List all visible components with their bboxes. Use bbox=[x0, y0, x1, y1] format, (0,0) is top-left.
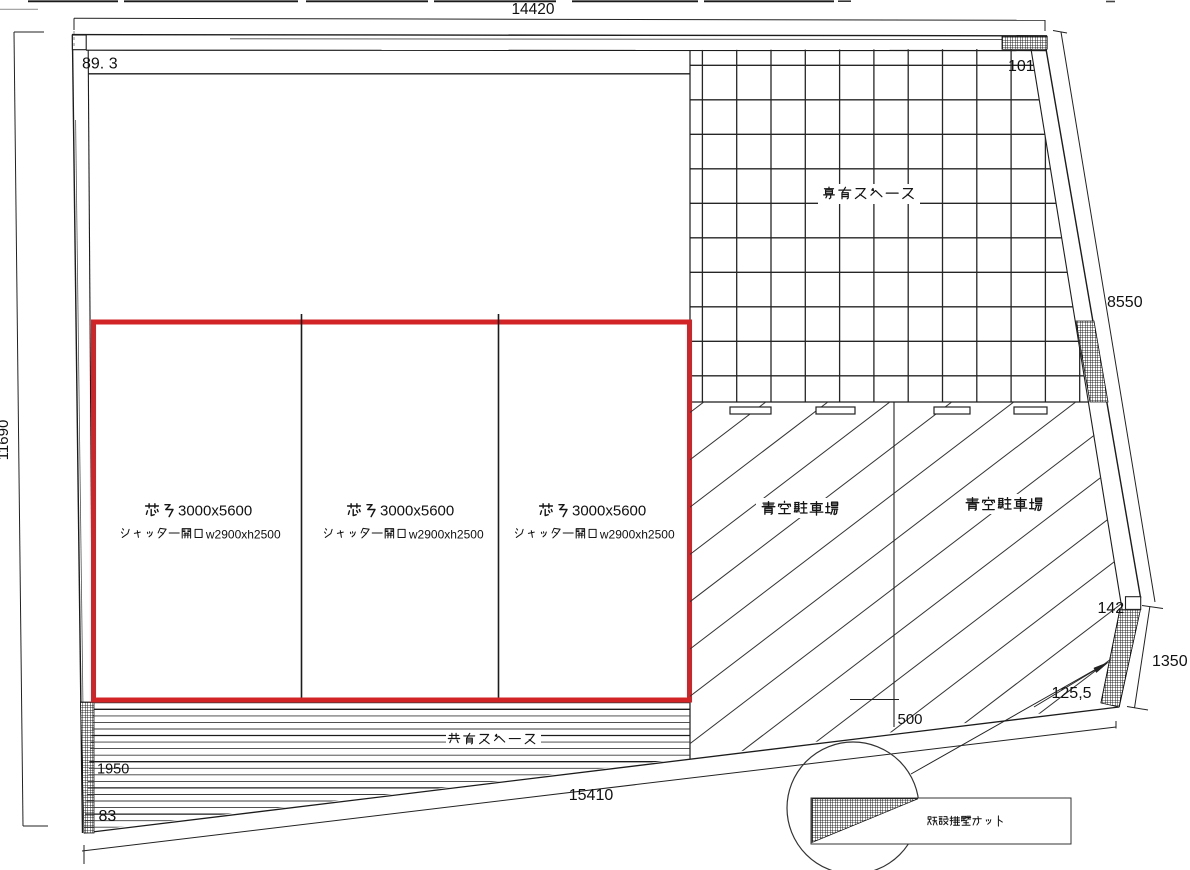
svg-text:15410: 15410 bbox=[569, 787, 614, 804]
svg-text:14420: 14420 bbox=[511, 1, 554, 18]
svg-text:101: 101 bbox=[1008, 58, 1035, 75]
svg-text:3000x5600: 3000x5600 bbox=[572, 503, 646, 520]
svg-text:1950: 1950 bbox=[97, 762, 129, 778]
svg-text:w2900xh2500: w2900xh2500 bbox=[599, 528, 675, 542]
svg-text:3000x5600: 3000x5600 bbox=[178, 503, 252, 520]
svg-text:w2900xh2500: w2900xh2500 bbox=[408, 528, 484, 542]
svg-text:11690: 11690 bbox=[0, 420, 12, 461]
svg-text:8550: 8550 bbox=[1107, 294, 1143, 311]
svg-text:1350: 1350 bbox=[1152, 653, 1188, 670]
svg-text:125,5: 125,5 bbox=[1052, 685, 1092, 702]
svg-text:83: 83 bbox=[99, 808, 117, 825]
svg-text:w2900xh2500: w2900xh2500 bbox=[205, 528, 281, 542]
svg-text:500: 500 bbox=[898, 711, 923, 728]
svg-text:89. 3: 89. 3 bbox=[82, 56, 118, 73]
svg-text:142: 142 bbox=[1098, 600, 1125, 617]
svg-text:3000x5600: 3000x5600 bbox=[380, 503, 454, 520]
